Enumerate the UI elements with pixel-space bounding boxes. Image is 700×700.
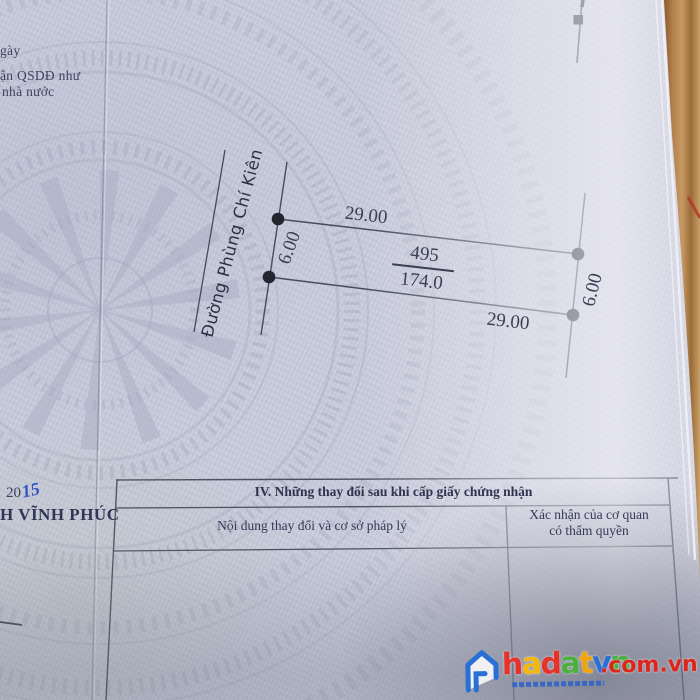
dimension-left: 6.00: [274, 229, 306, 268]
survey-marker-line: [577, 0, 582, 63]
corner-point: [263, 271, 276, 284]
paper-crease: [92, 0, 107, 700]
paper-edge-highlight: [662, 0, 695, 560]
table-col2-header: Xác nhận của cơ quan có thẩm quyền: [508, 507, 670, 539]
year-handwritten: 15: [20, 478, 42, 502]
house-icon: [462, 647, 503, 694]
dimension-bottom: 29.00: [486, 309, 531, 336]
table-rule-1: [115, 505, 670, 508]
plot-label: 495 174.0: [390, 241, 457, 294]
fraction-bar: [392, 263, 454, 272]
plot-number: 495: [409, 243, 440, 266]
plot-area: 174.0: [399, 269, 444, 294]
paper-texture: [0, 0, 700, 700]
corner-point: [572, 248, 585, 261]
brand-letter: a: [521, 647, 540, 682]
dimension-top: 29.00: [344, 203, 389, 230]
paper-highlight-right: [0, 0, 700, 700]
table-col2-line1: Xác nhận của cơ quan: [508, 507, 670, 523]
paper-edge-inner: [656, 0, 689, 555]
left-fragment-1: gày: [0, 43, 20, 59]
emblem-center: [86, 296, 114, 324]
plot-edge-top: [278, 219, 578, 254]
site-watermark: hadatvn .com.vn: [462, 642, 700, 700]
left-fragment-2: ận QSDĐ như: [0, 68, 80, 84]
line-work: [0, 0, 700, 700]
paper-shadow-corner: [0, 0, 700, 700]
paper-shadow-bottom: [0, 0, 700, 700]
table-rule-2: [113, 546, 672, 551]
paper-tint-green: [0, 0, 700, 700]
paper-tint-topleft: [0, 0, 700, 700]
table-col1-header: Nội dung thay đổi và cơ sở pháp lý: [118, 518, 506, 534]
table-border-top: [116, 478, 678, 480]
certificate-photo: gày ận QSDĐ như nhà nước 2015 H VĨNH PHÚ…: [0, 0, 700, 700]
dimension-right: 6.00: [578, 271, 607, 309]
brand-letter: t: [579, 646, 592, 681]
survey-marker-square: [574, 15, 584, 25]
survey-marker-stub: [582, 0, 583, 7]
table-border-left: [106, 480, 117, 700]
table-title: IV. Những thay đổi sau khi cấp giấy chứn…: [120, 484, 667, 500]
emblem-star-rays: [0, 170, 240, 450]
road-edge-inner: [261, 162, 287, 335]
wood-surface: [664, 0, 700, 582]
wood-table-edge: [0, 0, 700, 700]
plot-edge-bottom: [269, 277, 573, 315]
road-edge-outer: [194, 150, 225, 332]
brand-suffix: .com.vn: [600, 652, 698, 679]
tagline-dashes: [512, 681, 604, 688]
red-pen-mark: [688, 197, 700, 218]
paper-crease-highlight: [94, 0, 109, 700]
province-name: H VĨNH PHÚC: [0, 505, 119, 525]
signature-line-fragment: [0, 622, 22, 625]
corner-point: [567, 309, 580, 322]
table-col2-line2: có thẩm quyền: [508, 523, 670, 539]
emblem-rings: [0, 0, 700, 700]
plot-edge-right: [566, 193, 585, 378]
year-printed: 20: [6, 485, 21, 501]
issue-year: 2015: [6, 481, 40, 502]
left-fragment-3: nhà nước: [2, 84, 54, 100]
brand-letter: a: [560, 646, 579, 681]
brand-letter: d: [540, 646, 561, 681]
corner-point: [272, 213, 285, 226]
brand-letter: h: [502, 647, 522, 682]
street-name-label: Đường Phùng Chí Kiên: [198, 147, 267, 340]
